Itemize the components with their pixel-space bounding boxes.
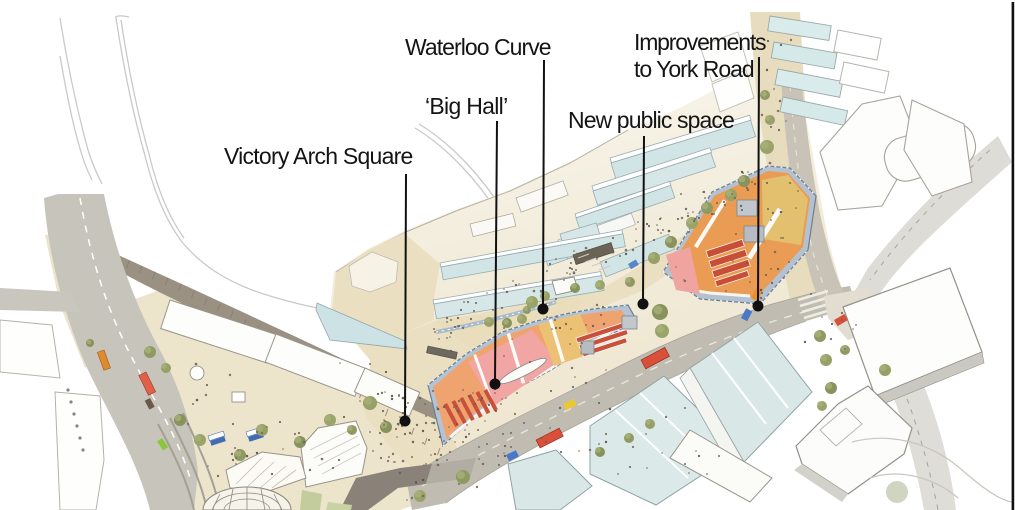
svg-text:‘Big Hall’: ‘Big Hall’ <box>425 93 507 119</box>
svg-text:to York Road: to York Road <box>634 56 754 82</box>
svg-text:Victory Arch Square: Victory Arch Square <box>224 143 413 169</box>
svg-text:Waterloo Curve: Waterloo Curve <box>405 34 551 60</box>
svg-text:Improvements: Improvements <box>634 29 766 55</box>
svg-text:New public space: New public space <box>568 107 734 133</box>
